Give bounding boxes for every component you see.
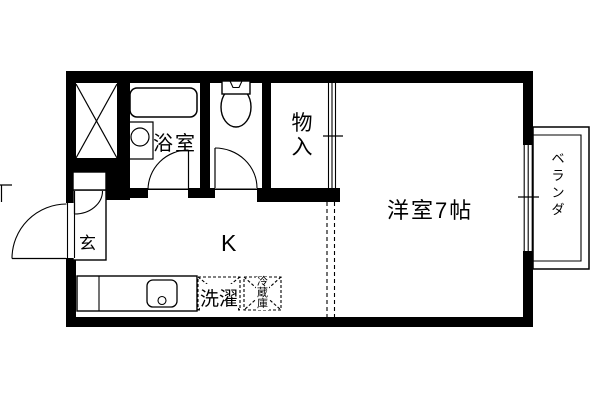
veranda-label: ベランダ xyxy=(550,150,566,218)
wall-closet-bottom xyxy=(257,188,340,202)
entrance-label: 玄 xyxy=(79,229,96,254)
storage-x-box xyxy=(76,84,117,158)
kitchen-room-partition xyxy=(327,202,335,317)
wall-top xyxy=(66,71,533,83)
shoe-cabinet xyxy=(73,172,106,190)
washbasin-bowl xyxy=(131,128,149,146)
bathroom-door-arc xyxy=(148,150,189,190)
wall-right-upper xyxy=(523,71,533,145)
kitchen-label: K xyxy=(221,230,236,257)
counter-outline xyxy=(77,276,197,311)
toilet-door-arc xyxy=(215,148,257,188)
wall-bath-toilet xyxy=(200,83,210,198)
wall-hall-block xyxy=(106,158,130,200)
wall-right-lower xyxy=(523,251,533,327)
kitchen-counter xyxy=(77,276,197,311)
exterior-wall-stub xyxy=(0,185,12,202)
veranda-window xyxy=(518,145,539,251)
sink-drain xyxy=(158,297,166,305)
wall-left-lower xyxy=(66,258,76,327)
toilet-fixtures xyxy=(215,81,257,188)
wall-toilet-closet xyxy=(262,83,271,198)
wall-bath-sill-left xyxy=(130,188,148,198)
bathtub xyxy=(130,88,197,117)
washer-label: 洗濯 xyxy=(200,284,238,311)
closet-label: 物入 xyxy=(291,112,313,160)
floorplan-drawing xyxy=(0,0,600,400)
wall-bottom xyxy=(66,317,533,327)
wall-between-doors xyxy=(188,188,215,198)
floorplan-canvas: 浴室 物入 洋室7帖 ベランダ 玄 K 洗濯 冷蔵庫 xyxy=(0,0,600,400)
entrance-door-arc xyxy=(12,204,67,259)
closet-sliding-door xyxy=(323,83,343,188)
western-room-label: 洋室7帖 xyxy=(387,193,473,225)
refrigerator-label: 冷蔵庫 xyxy=(256,277,269,310)
bathroom-label: 浴室 xyxy=(153,127,197,156)
